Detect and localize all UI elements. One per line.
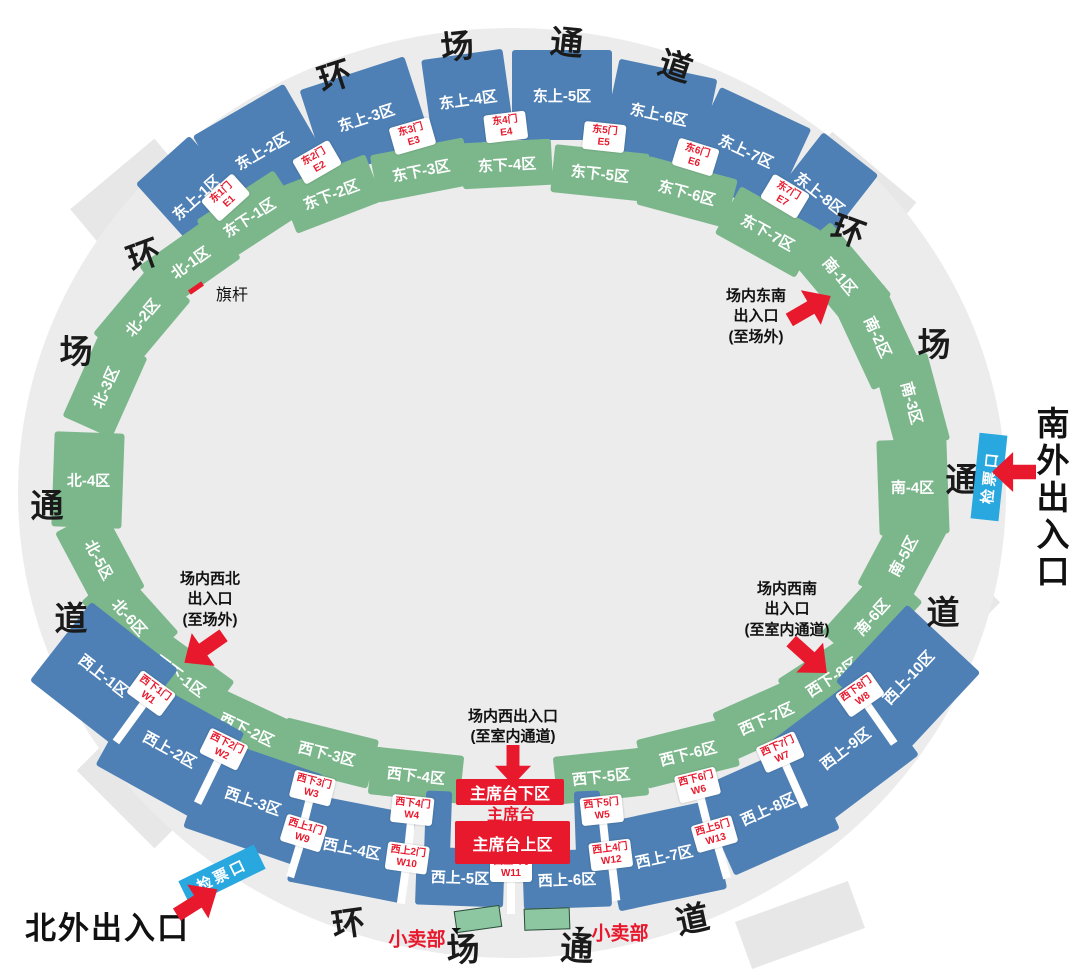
section-label: 西上-10区 xyxy=(878,645,939,708)
sw-entrance-label: 场内西南出入口(至室内通道) xyxy=(745,580,830,641)
section-east_lower-5[interactable]: 东下-5区 xyxy=(550,144,649,202)
section-label: 东上-7区 xyxy=(715,129,777,173)
section-label: 西下-5区 xyxy=(571,763,631,790)
ring-corridor-char-right-2: 场 xyxy=(918,318,951,366)
shop-label-right: 小卖部 xyxy=(591,919,648,946)
ring-corridor-char-left-2: 场 xyxy=(60,325,93,373)
section-label: 西上-3区 xyxy=(222,782,284,821)
ring-corridor-char-right-4: 道 xyxy=(927,586,960,634)
ring-corridor-char-top-2: 场 xyxy=(438,18,476,69)
section-label: 西上-9区 xyxy=(815,722,874,774)
section-label: 北-2区 xyxy=(120,294,164,341)
gate-box[interactable]: 西上4门W12 xyxy=(588,839,633,872)
section-label: 西上-7区 xyxy=(633,840,694,873)
south-outer-entrance-label: 南外出入口 xyxy=(1026,406,1074,591)
stage-upper-label: 主席台上区 xyxy=(472,831,552,855)
stadium-map: 东上-1区东上-2区东上-3区东上-4区东上-5区东上-6区东上-7区东上-8区… xyxy=(0,0,1080,975)
section-label: 东下-4区 xyxy=(477,152,536,176)
se-entrance-label: 场内东南出入口(至场外) xyxy=(726,287,786,348)
section-label: 东上-5区 xyxy=(533,85,591,106)
section-label: 东上-2区 xyxy=(231,127,292,174)
gate-box[interactable]: 西上2门W10 xyxy=(385,841,430,875)
section-label: 西上-6区 xyxy=(537,867,596,890)
section-label: 西上-1区 xyxy=(75,649,134,701)
north-outer-entrance-label: 北外出入口 xyxy=(25,903,190,948)
gate-code: W11 xyxy=(490,868,532,880)
section-east_lower-4[interactable]: 东下-4区 xyxy=(461,139,553,190)
section-label: 西上-8区 xyxy=(737,788,799,831)
section-label: 东上-3区 xyxy=(335,98,397,136)
shop-label-left: 小卖部 xyxy=(388,925,445,952)
section-label: 东下-5区 xyxy=(570,160,630,187)
gate-box[interactable]: 西下5门W5 xyxy=(579,794,624,826)
section-label: 东上-6区 xyxy=(628,98,689,131)
section-label: 东下-3区 xyxy=(390,154,451,186)
section-label: 西下-6区 xyxy=(657,736,719,770)
section-label: 西上-2区 xyxy=(139,726,200,773)
section-label: 西上-4区 xyxy=(321,832,382,864)
section-label: 北-1区 xyxy=(166,241,214,283)
gate-box[interactable]: 东5门E5 xyxy=(582,121,627,153)
section-label: 西上-5区 xyxy=(430,865,489,888)
ring-corridor-char-left-4: 道 xyxy=(55,592,88,640)
section-label: 东下-6区 xyxy=(656,174,718,209)
section-label: 南-4区 xyxy=(891,477,934,498)
flagpole-label: 旗杆 xyxy=(216,281,248,305)
section-label: 南-2区 xyxy=(859,313,896,361)
gate-box[interactable]: 东4门E4 xyxy=(483,111,528,144)
section-label: 南-3区 xyxy=(896,379,928,426)
shop-box-right[interactable] xyxy=(524,907,571,931)
stage-upper-block[interactable]: 主席台上区 xyxy=(455,821,570,864)
section-label: 西下-3区 xyxy=(296,736,358,770)
section-label: 东上-4区 xyxy=(438,85,499,114)
gate-box[interactable]: 西下4门W4 xyxy=(390,794,435,826)
ring-corridor-char-top-3: 通 xyxy=(548,14,586,65)
w-entrance-label: 场内西出入口(至室内通道) xyxy=(468,707,558,748)
section-label: 西下-4区 xyxy=(386,762,446,789)
section-label: 北-4区 xyxy=(66,470,109,491)
section-label: 南-1区 xyxy=(818,253,862,300)
nw-entrance-label: 场内西北出入口(至场外) xyxy=(180,570,240,631)
ring-corridor-char-bottom-1: 环 xyxy=(328,895,367,947)
ring-corridor-char-left-3: 通 xyxy=(31,479,64,527)
